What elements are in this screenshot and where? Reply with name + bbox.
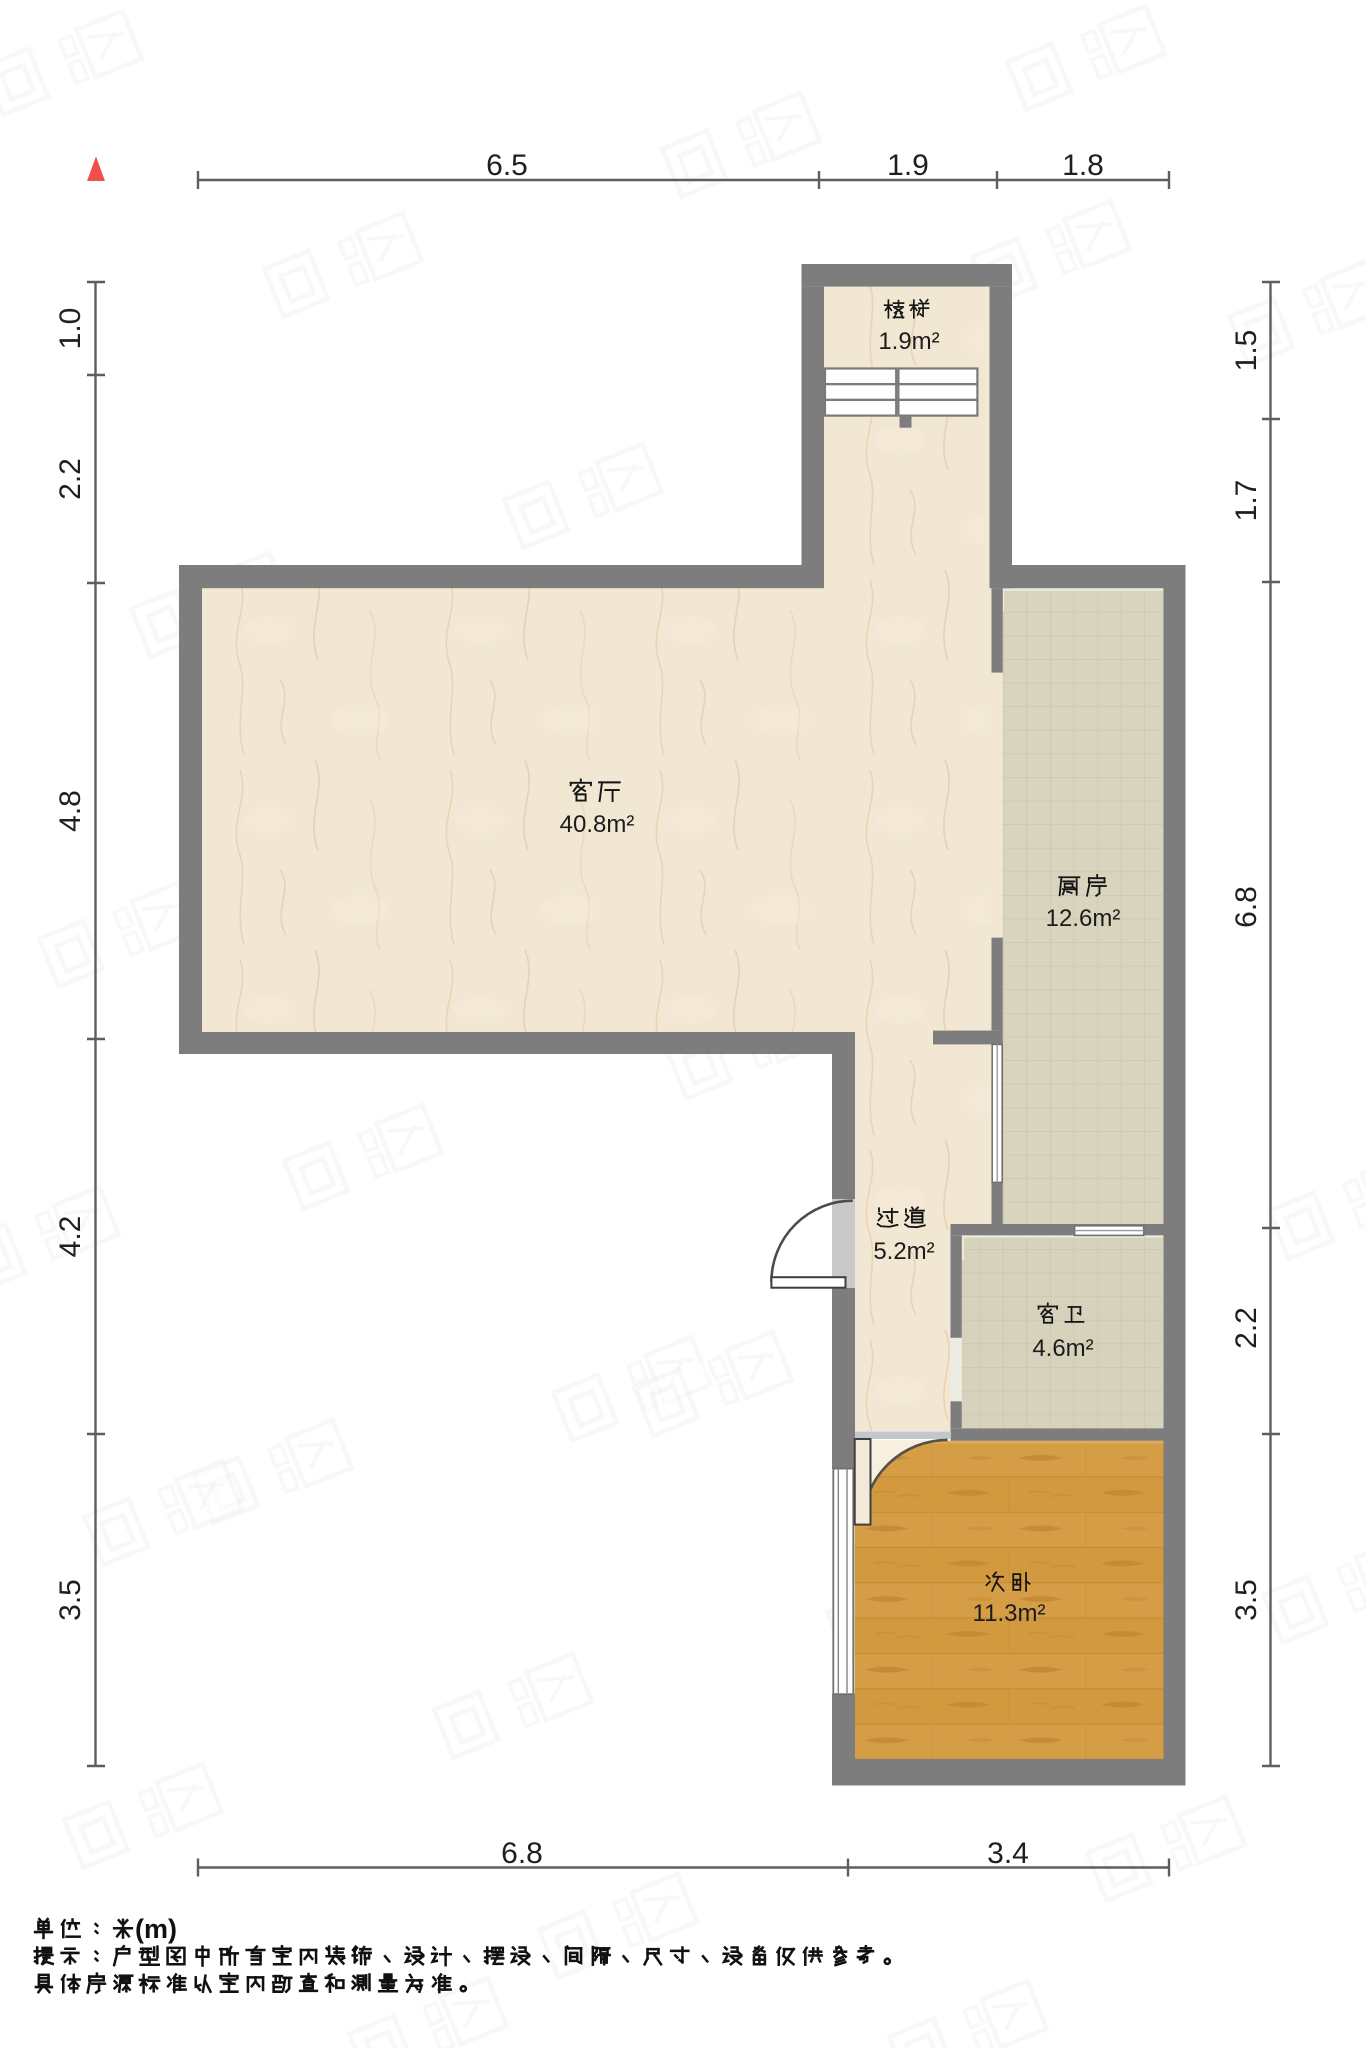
- svg-text:4.2: 4.2: [54, 1216, 87, 1258]
- svg-text:2.2: 2.2: [54, 458, 87, 500]
- svg-text:1.9m²: 1.9m²: [878, 328, 939, 355]
- svg-text:6.8: 6.8: [1230, 886, 1263, 928]
- svg-text:11.3m²: 11.3m²: [973, 1600, 1046, 1627]
- svg-text:1.7: 1.7: [1230, 480, 1263, 522]
- svg-text:6.5: 6.5: [486, 149, 528, 182]
- svg-text:3.5: 3.5: [1230, 1579, 1263, 1621]
- svg-text:3.5: 3.5: [54, 1579, 87, 1621]
- svg-text:(m): (m): [135, 1914, 177, 1944]
- svg-text:1.8: 1.8: [1062, 149, 1104, 182]
- svg-text:4.8: 4.8: [54, 790, 87, 832]
- svg-text:4.6m²: 4.6m²: [1032, 1335, 1093, 1362]
- svg-text:6.8: 6.8: [501, 1837, 543, 1870]
- svg-text:2.2: 2.2: [1230, 1307, 1263, 1349]
- svg-text:12.6m²: 12.6m²: [1046, 905, 1121, 932]
- svg-text:1.9: 1.9: [887, 149, 929, 182]
- svg-text:3.4: 3.4: [987, 1837, 1029, 1870]
- svg-text:1.5: 1.5: [1230, 330, 1263, 372]
- svg-text:40.8m²: 40.8m²: [560, 811, 635, 838]
- svg-text:1.0: 1.0: [54, 308, 87, 350]
- svg-text:5.2m²: 5.2m²: [873, 1238, 934, 1265]
